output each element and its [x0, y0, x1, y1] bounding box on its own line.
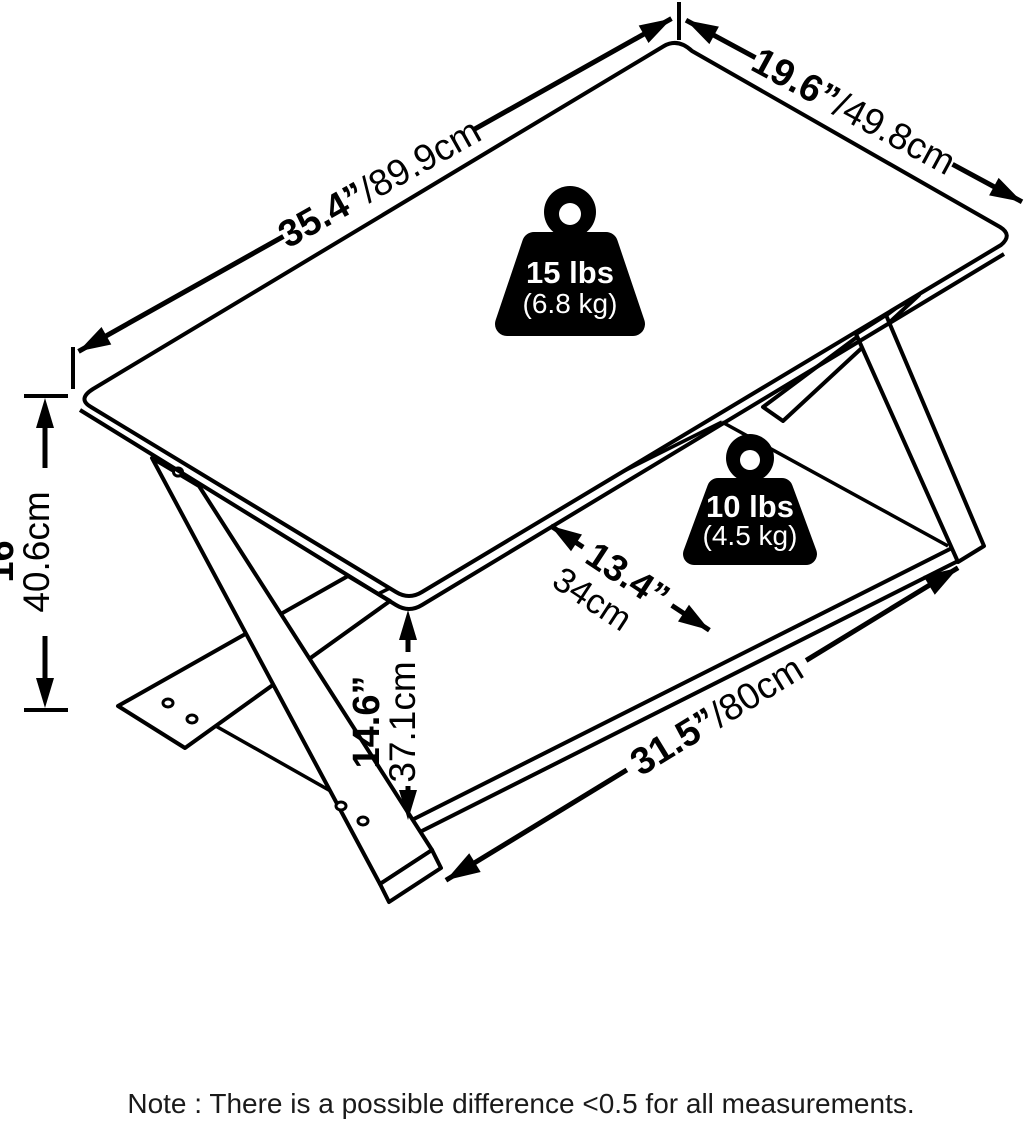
weight-ring-hole — [740, 450, 760, 470]
dim-shelf-width: 31.5”/80cm — [436, 551, 970, 899]
shelf-front-top-edge — [396, 548, 952, 828]
screw-hole — [163, 699, 173, 707]
weight-top-lbs: 15 lbs — [526, 255, 614, 290]
screw-hole — [358, 817, 368, 825]
weight-shelf-kg: (4.5 kg) — [703, 520, 798, 551]
dimension-diagram: 35.4”/89.9cm 19.6”/49.8cm 16” 40.6cm — [0, 0, 1024, 1127]
shelf-front-bottom-edge — [400, 559, 962, 842]
weight-ring-hole — [559, 203, 581, 225]
dim-shelf-height-cm: 37.1cm — [382, 661, 423, 782]
leg-front-right — [856, 315, 984, 562]
screw-hole — [336, 802, 346, 810]
screw-hole — [187, 715, 197, 723]
diagram-svg: 35.4”/89.9cm 19.6”/49.8cm 16” 40.6cm — [0, 0, 1024, 1127]
weight-shelf-lbs: 10 lbs — [706, 489, 794, 524]
dim-height: 16” 40.6cm — [0, 396, 68, 710]
dim-height-cm: 40.6cm — [16, 491, 57, 612]
weight-icon-shelf: 10 lbs (4.5 kg) — [694, 434, 806, 554]
note-text: Note : There is a possible difference <0… — [127, 1088, 914, 1119]
weight-top-kg: (6.8 kg) — [523, 288, 618, 319]
table-drawing — [80, 43, 1007, 902]
